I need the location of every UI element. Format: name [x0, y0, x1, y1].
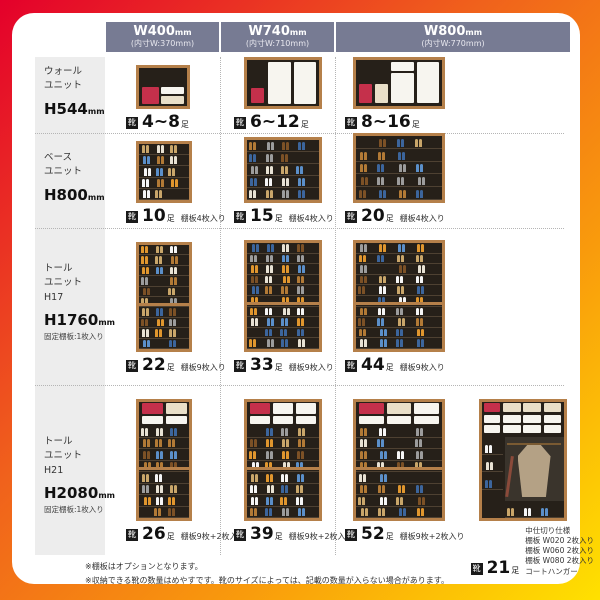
shoe-badge-icon: 靴	[234, 211, 246, 223]
capacity-caption: 靴 33 足 棚板9枚入り	[220, 357, 335, 374]
capacity-caption: 靴 4~8 足	[106, 114, 220, 131]
cabinet-photo-base-w400	[136, 141, 192, 203]
capacity-caption: 靴 22 足 棚板9枚入り	[106, 357, 220, 374]
cell-tall-h17-w740: 靴 33 足 棚板9枚入り	[220, 228, 335, 374]
cell-wall-w400: 靴 4~8 足	[106, 57, 220, 131]
shelf-count-note: 棚板4枚入り	[400, 213, 445, 224]
shoe-badge-icon: 靴	[345, 117, 357, 129]
cabinet-photo-tall-h21-w740	[244, 399, 322, 521]
shoe-count: 6~12	[250, 114, 300, 131]
capacity-caption: 靴 6~12 足	[220, 114, 335, 131]
shelf-count-note: 棚板9枚入り	[289, 362, 334, 373]
shoe-count-unit: 足	[167, 213, 175, 224]
shoe-count: 4~8	[142, 114, 180, 131]
footnotes: ※棚板はオプションとなります。 ※収納できる靴の数量はめやすです。靴のサイズによ…	[85, 560, 449, 587]
cell-tall-h17-w400: 靴 22 足 棚板9枚入り	[106, 228, 220, 374]
column-inner-width-label: (内寸W:770mm)	[336, 39, 570, 49]
shoe-count-unit: 足	[386, 531, 394, 542]
shoe-count-unit: 足	[386, 362, 394, 373]
shoe-badge-icon: 靴	[471, 563, 483, 575]
shoe-count-unit: 足	[275, 213, 283, 224]
shoe-count: 22	[142, 357, 166, 374]
unit-height: H2080mm	[44, 485, 105, 502]
cell-wall-w740: 靴 6~12 足	[220, 57, 335, 131]
capacity-caption: 靴 26 足 棚板9枚+2枚入り	[106, 526, 220, 543]
cell-base-w740: 靴 15 足 棚板4枚入り	[220, 133, 335, 225]
cell-tall-h21-w400: 靴 26 足 棚板9枚+2枚入り	[106, 385, 220, 543]
shelf-count-note: 棚板9枚+2枚入り	[400, 531, 465, 542]
column-width-label: W800mm	[336, 25, 570, 39]
shoe-count: 20	[361, 208, 385, 225]
row-label-wall-unit: ウォール ユニット H544mm	[35, 65, 105, 117]
spec-table-card: W400mm (内寸W:370mm) W740mm (内寸W:710mm) W8…	[12, 13, 580, 584]
shelf-count-note: 棚板4枚入り	[289, 213, 334, 224]
column-header-w400: W400mm (内寸W:370mm)	[106, 22, 219, 52]
shoe-count-unit: 足	[275, 531, 283, 542]
shoe-badge-icon: 靴	[126, 117, 138, 129]
cell-tall-h21-w800: 靴 52 足 棚板9枚+2枚入り 靴 21 足 中仕切り仕様 棚板 W020 2…	[335, 385, 570, 577]
fixed-shelf-note: 固定棚板:1枚入り	[44, 331, 105, 342]
shoe-count: 44	[361, 357, 385, 374]
shelf-count-note: 棚板9枚入り	[400, 362, 445, 373]
shoe-badge-icon: 靴	[126, 211, 138, 223]
shoe-badge-icon: 靴	[234, 529, 246, 541]
cell-wall-w800: 靴 8~16 足	[335, 57, 570, 131]
cabinet-photo-wall-w740	[244, 57, 322, 109]
shoe-count-unit: 足	[412, 119, 420, 130]
capacity-caption: 靴 20 足 棚板4枚入り	[335, 208, 570, 225]
cabinet-photo-tall-h21-w400	[136, 399, 192, 521]
column-header-w800: W800mm (内寸W:770mm)	[336, 22, 570, 52]
capacity-caption: 靴 10 足 棚板4枚入り	[106, 208, 220, 225]
shoe-count: 52	[361, 526, 385, 543]
cell-tall-h17-w800: 靴 44 足 棚板9枚入り	[335, 228, 570, 374]
shoe-badge-icon: 靴	[234, 360, 246, 372]
shoe-count: 26	[142, 526, 166, 543]
cabinet-photo-tall-h17-w800	[353, 240, 445, 352]
column-width-label: W400mm	[106, 25, 219, 39]
footnote-2: ※収納できる靴の数量はめやすです。靴のサイズによっては、記載の数量が入らない場合…	[85, 574, 449, 588]
column-inner-width-label: (内寸W:370mm)	[106, 39, 219, 49]
row-label-tall-unit-h17: トール ユニット H17 H1760mm 固定棚板:1枚入り	[35, 262, 105, 342]
row-label-base-unit: ベース ユニット H800mm	[35, 151, 105, 203]
cell-base-w400: 靴 10 足 棚板4枚入り	[106, 133, 220, 225]
cell-tall-h21-w740: 靴 39 足 棚板9枚+2枚入り	[220, 385, 335, 543]
shoe-count-unit: 足	[511, 565, 519, 576]
shoe-count: 10	[142, 208, 166, 225]
capacity-caption: 靴 21 足 中仕切り仕様 棚板 W020 2枚入り 棚板 W060 2枚入り …	[465, 526, 594, 577]
shoe-badge-icon: 靴	[345, 529, 357, 541]
shoe-count-unit: 足	[167, 531, 175, 542]
column-header-w740: W740mm (内寸W:710mm)	[221, 22, 334, 52]
catalog-page: { "header": { "columns": [ {"size": "W40…	[0, 0, 600, 600]
shoe-count: 8~16	[361, 114, 411, 131]
column-width-label: W740mm	[221, 25, 334, 39]
shoe-badge-icon: 靴	[345, 211, 357, 223]
cell-base-w800: 靴 20 足 棚板4枚入り	[335, 133, 570, 225]
capacity-caption: 靴 15 足 棚板4枚入り	[220, 208, 335, 225]
shoe-count-unit: 足	[167, 362, 175, 373]
column-inner-width-label: (内寸W:710mm)	[221, 39, 334, 49]
shoe-count: 33	[250, 357, 274, 374]
shoe-badge-icon: 靴	[126, 360, 138, 372]
fixed-shelf-note: 固定棚板:1枚入り	[44, 504, 105, 515]
footnote-1: ※棚板はオプションとなります。	[85, 560, 449, 574]
capacity-caption: 靴 8~16 足	[335, 114, 570, 131]
variant-coat-hanger: 靴 21 足 中仕切り仕様 棚板 W020 2枚入り 棚板 W060 2枚入り …	[465, 385, 594, 577]
shoe-count-unit: 足	[275, 362, 283, 373]
cabinet-photo-wall-w800	[353, 57, 445, 109]
shoe-count-unit: 足	[301, 119, 309, 130]
shoe-count: 39	[250, 526, 274, 543]
capacity-caption: 靴 44 足 棚板9枚入り	[335, 357, 570, 374]
shoe-badge-icon: 靴	[234, 117, 246, 129]
cabinet-photo-base-w800	[353, 133, 445, 203]
shelf-count-note: 棚板9枚入り	[181, 362, 226, 373]
coat-hanger-spec-note: 中仕切り仕様 棚板 W020 2枚入り 棚板 W060 2枚入り 棚板 W080…	[525, 526, 594, 577]
unit-height: H800mm	[44, 187, 105, 204]
cabinet-photo-tall-h17-w740	[244, 240, 322, 352]
shoe-count: 15	[250, 208, 274, 225]
variant-standard: 靴 52 足 棚板9枚+2枚入り	[335, 385, 465, 577]
row-label-tall-unit-h21: トール ユニット H21 H2080mm 固定棚板:1枚入り	[35, 435, 105, 515]
shoe-count-unit: 足	[181, 119, 189, 130]
cabinet-photo-base-w740	[244, 137, 322, 203]
unit-height: H1760mm	[44, 312, 105, 329]
unit-height: H544mm	[44, 101, 105, 118]
cabinet-photo-wall-w400	[136, 65, 190, 109]
capacity-caption: 靴 52 足 棚板9枚+2枚入り	[335, 526, 465, 543]
shoe-count: 21	[487, 560, 511, 577]
cabinet-photo-tall-h21-w800-coat	[479, 399, 567, 521]
cabinet-photo-tall-h21-w800	[353, 399, 445, 521]
cabinet-photo-tall-h17-w400	[136, 242, 192, 352]
shoe-count-unit: 足	[386, 213, 394, 224]
capacity-caption: 靴 39 足 棚板9枚+2枚入り	[220, 526, 335, 543]
shoe-badge-icon: 靴	[126, 529, 138, 541]
shelf-count-note: 棚板4枚入り	[181, 213, 226, 224]
shoe-badge-icon: 靴	[345, 360, 357, 372]
